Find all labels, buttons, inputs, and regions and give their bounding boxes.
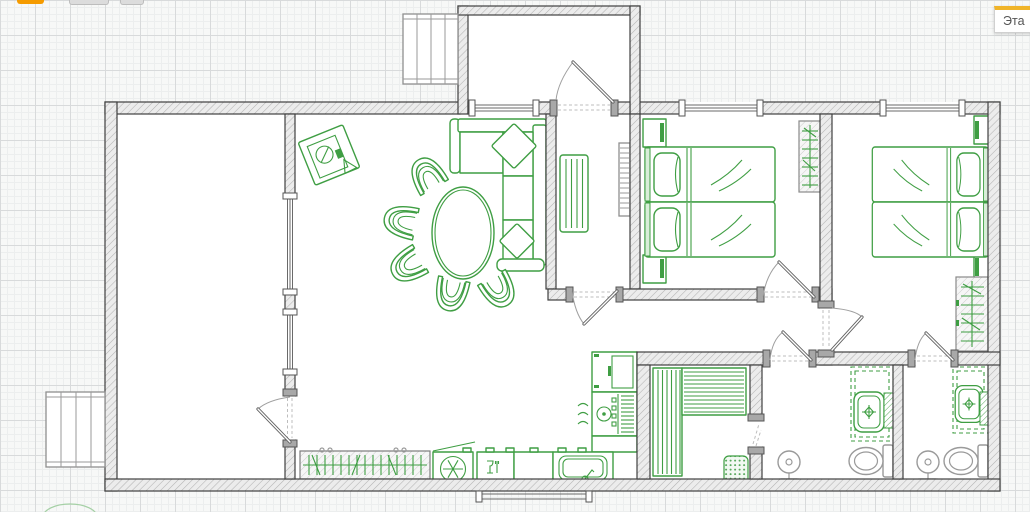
floorplan-drawing[interactable]	[0, 0, 1030, 512]
vanity[interactable]	[851, 367, 893, 441]
wardrobe[interactable]	[799, 121, 821, 192]
plant[interactable]	[43, 504, 97, 512]
exterior-stairs-top[interactable]	[403, 14, 458, 84]
floorplan-canvas[interactable]: Эта	[0, 0, 1030, 512]
single-bed[interactable]	[645, 202, 775, 257]
nightstand[interactable]	[643, 255, 666, 283]
single-bed[interactable]	[872, 147, 988, 202]
vanity[interactable]	[953, 367, 989, 433]
toolbar-fragment-gray[interactable]	[120, 0, 144, 5]
nightstand[interactable]	[974, 116, 989, 144]
sideboard[interactable]	[300, 448, 430, 479]
towel-ladder[interactable]	[619, 143, 630, 216]
stove[interactable]	[592, 392, 637, 436]
hall-radiator[interactable]	[560, 155, 588, 232]
toilet[interactable]	[944, 445, 988, 477]
window[interactable]	[476, 491, 592, 502]
single-bed[interactable]	[872, 202, 988, 257]
counter[interactable]	[592, 436, 637, 452]
window[interactable]	[679, 100, 763, 116]
window[interactable]	[283, 309, 297, 375]
nightstand[interactable]	[643, 119, 666, 147]
exterior-stairs-left[interactable]	[46, 392, 105, 467]
toilet[interactable]	[849, 445, 893, 477]
dining-table[interactable]	[432, 187, 494, 279]
tall-cabinet[interactable]	[592, 352, 637, 392]
toolbar-fragment-gray[interactable]	[69, 0, 109, 5]
floor-selector-button[interactable]: Эта	[994, 6, 1030, 33]
single-bed[interactable]	[645, 147, 775, 202]
floor-selector-label: Эта	[1003, 14, 1025, 28]
window[interactable]	[283, 193, 297, 295]
window[interactable]	[469, 100, 539, 116]
door[interactable]	[748, 414, 764, 454]
toolbar-fragment-orange[interactable]	[17, 0, 44, 4]
window[interactable]	[880, 100, 965, 116]
wardrobe[interactable]	[956, 277, 988, 351]
